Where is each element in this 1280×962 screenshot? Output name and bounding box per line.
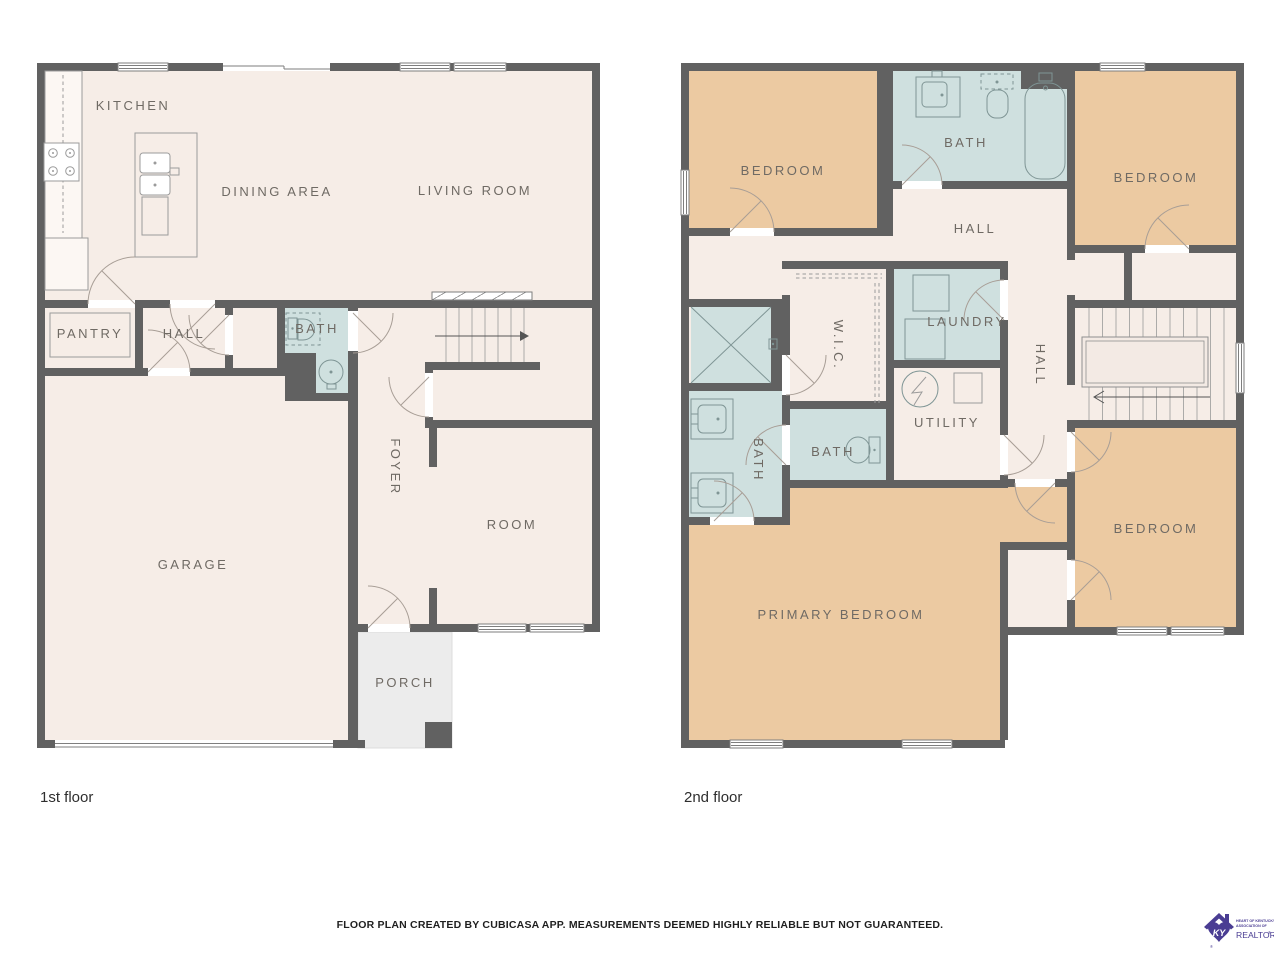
bath-left-area — [689, 391, 782, 517]
wall-offset-segment — [223, 63, 330, 71]
room-label-foyer: FOYER — [388, 438, 403, 495]
room-label-primary: PRIMARY BEDROOM — [757, 607, 924, 622]
floor1-plan: KITCHEN DINING AREA LIVING ROOM PANTRY H… — [30, 55, 610, 755]
room-label-bedroom-tr: BEDROOM — [1114, 170, 1199, 185]
room-label-room: ROOM — [487, 517, 537, 532]
floor1-caption: 1st floor — [40, 789, 93, 806]
room-label-bath-top: BATH — [944, 135, 988, 150]
floor2-svg: BEDROOM BATH BEDROOM HALL W.I.C. LAUNDRY… — [670, 55, 1255, 755]
room-label-living: LIVING ROOM — [418, 183, 532, 198]
window — [1100, 63, 1145, 71]
bedroom-tl-area — [689, 71, 877, 228]
floor1-svg: KITCHEN DINING AREA LIVING ROOM PANTRY H… — [30, 55, 610, 755]
realtor-association-logo: KY ® HEART OF KENTUCKY ASSOCIATION OF RE… — [1202, 905, 1274, 957]
floor2-plan: BEDROOM BATH BEDROOM HALL W.I.C. LAUNDRY… — [670, 55, 1255, 755]
room-label-pantry: PANTRY — [57, 326, 124, 341]
logo-svg: KY ® HEART OF KENTUCKY ASSOCIATION OF RE… — [1202, 905, 1274, 957]
room-label-bedroom-br: BEDROOM — [1114, 521, 1199, 536]
window — [730, 740, 783, 748]
logo-org-line1: HEART OF KENTUCKY — [1236, 919, 1274, 923]
stove-symbol — [44, 143, 79, 181]
window — [1117, 627, 1167, 635]
logo-monogram: KY — [1213, 928, 1226, 938]
stair-railing — [1082, 337, 1208, 387]
room-label-hall-top: HALL — [954, 221, 997, 236]
room-label-dining: DINING AREA — [221, 184, 332, 199]
logo-reg: ® — [1268, 930, 1271, 935]
logo-wordmark: HEART OF KENTUCKY ASSOCIATION OF REALTOR… — [1236, 919, 1274, 940]
garage-door — [55, 740, 333, 748]
room-label-hall-vert: HALL — [1033, 344, 1048, 387]
room-label-utility: UTILITY — [914, 415, 980, 430]
floor1-interior — [45, 71, 592, 740]
window — [400, 63, 450, 71]
window — [118, 63, 168, 71]
window — [1171, 627, 1224, 635]
window — [1236, 343, 1244, 393]
window — [454, 63, 506, 71]
stair-railing-hatch — [432, 292, 532, 300]
room-label-laundry: LAUNDRY — [927, 314, 1006, 329]
room-label-hall: HALL — [163, 326, 206, 341]
window — [478, 624, 526, 632]
logo-org-line2: ASSOCIATION OF — [1236, 924, 1267, 928]
room-label-bath-small: BATH — [811, 444, 855, 459]
disclaimer-text: FLOOR PLAN CREATED BY CUBICASA APP. MEAS… — [0, 919, 1280, 931]
room-label-bath: BATH — [295, 321, 339, 336]
room-label-bath-left: BATH — [751, 438, 766, 482]
refrigerator-symbol — [45, 238, 88, 290]
window — [902, 740, 952, 748]
room-label-kitchen: KITCHEN — [96, 98, 171, 113]
house-icon: KY ® — [1204, 913, 1234, 949]
bedroom-tr-area — [1075, 71, 1236, 245]
window — [681, 170, 689, 215]
room-label-garage: GARAGE — [158, 557, 229, 572]
logo-reg-small: ® — [1210, 944, 1213, 949]
room-label-porch: PORCH — [375, 675, 434, 690]
floor2-caption: 2nd floor — [684, 789, 742, 806]
porch-step — [425, 722, 452, 748]
room-label-bedroom-tl: BEDROOM — [741, 163, 826, 178]
room-label-wic: W.I.C. — [831, 320, 846, 370]
window — [530, 624, 584, 632]
